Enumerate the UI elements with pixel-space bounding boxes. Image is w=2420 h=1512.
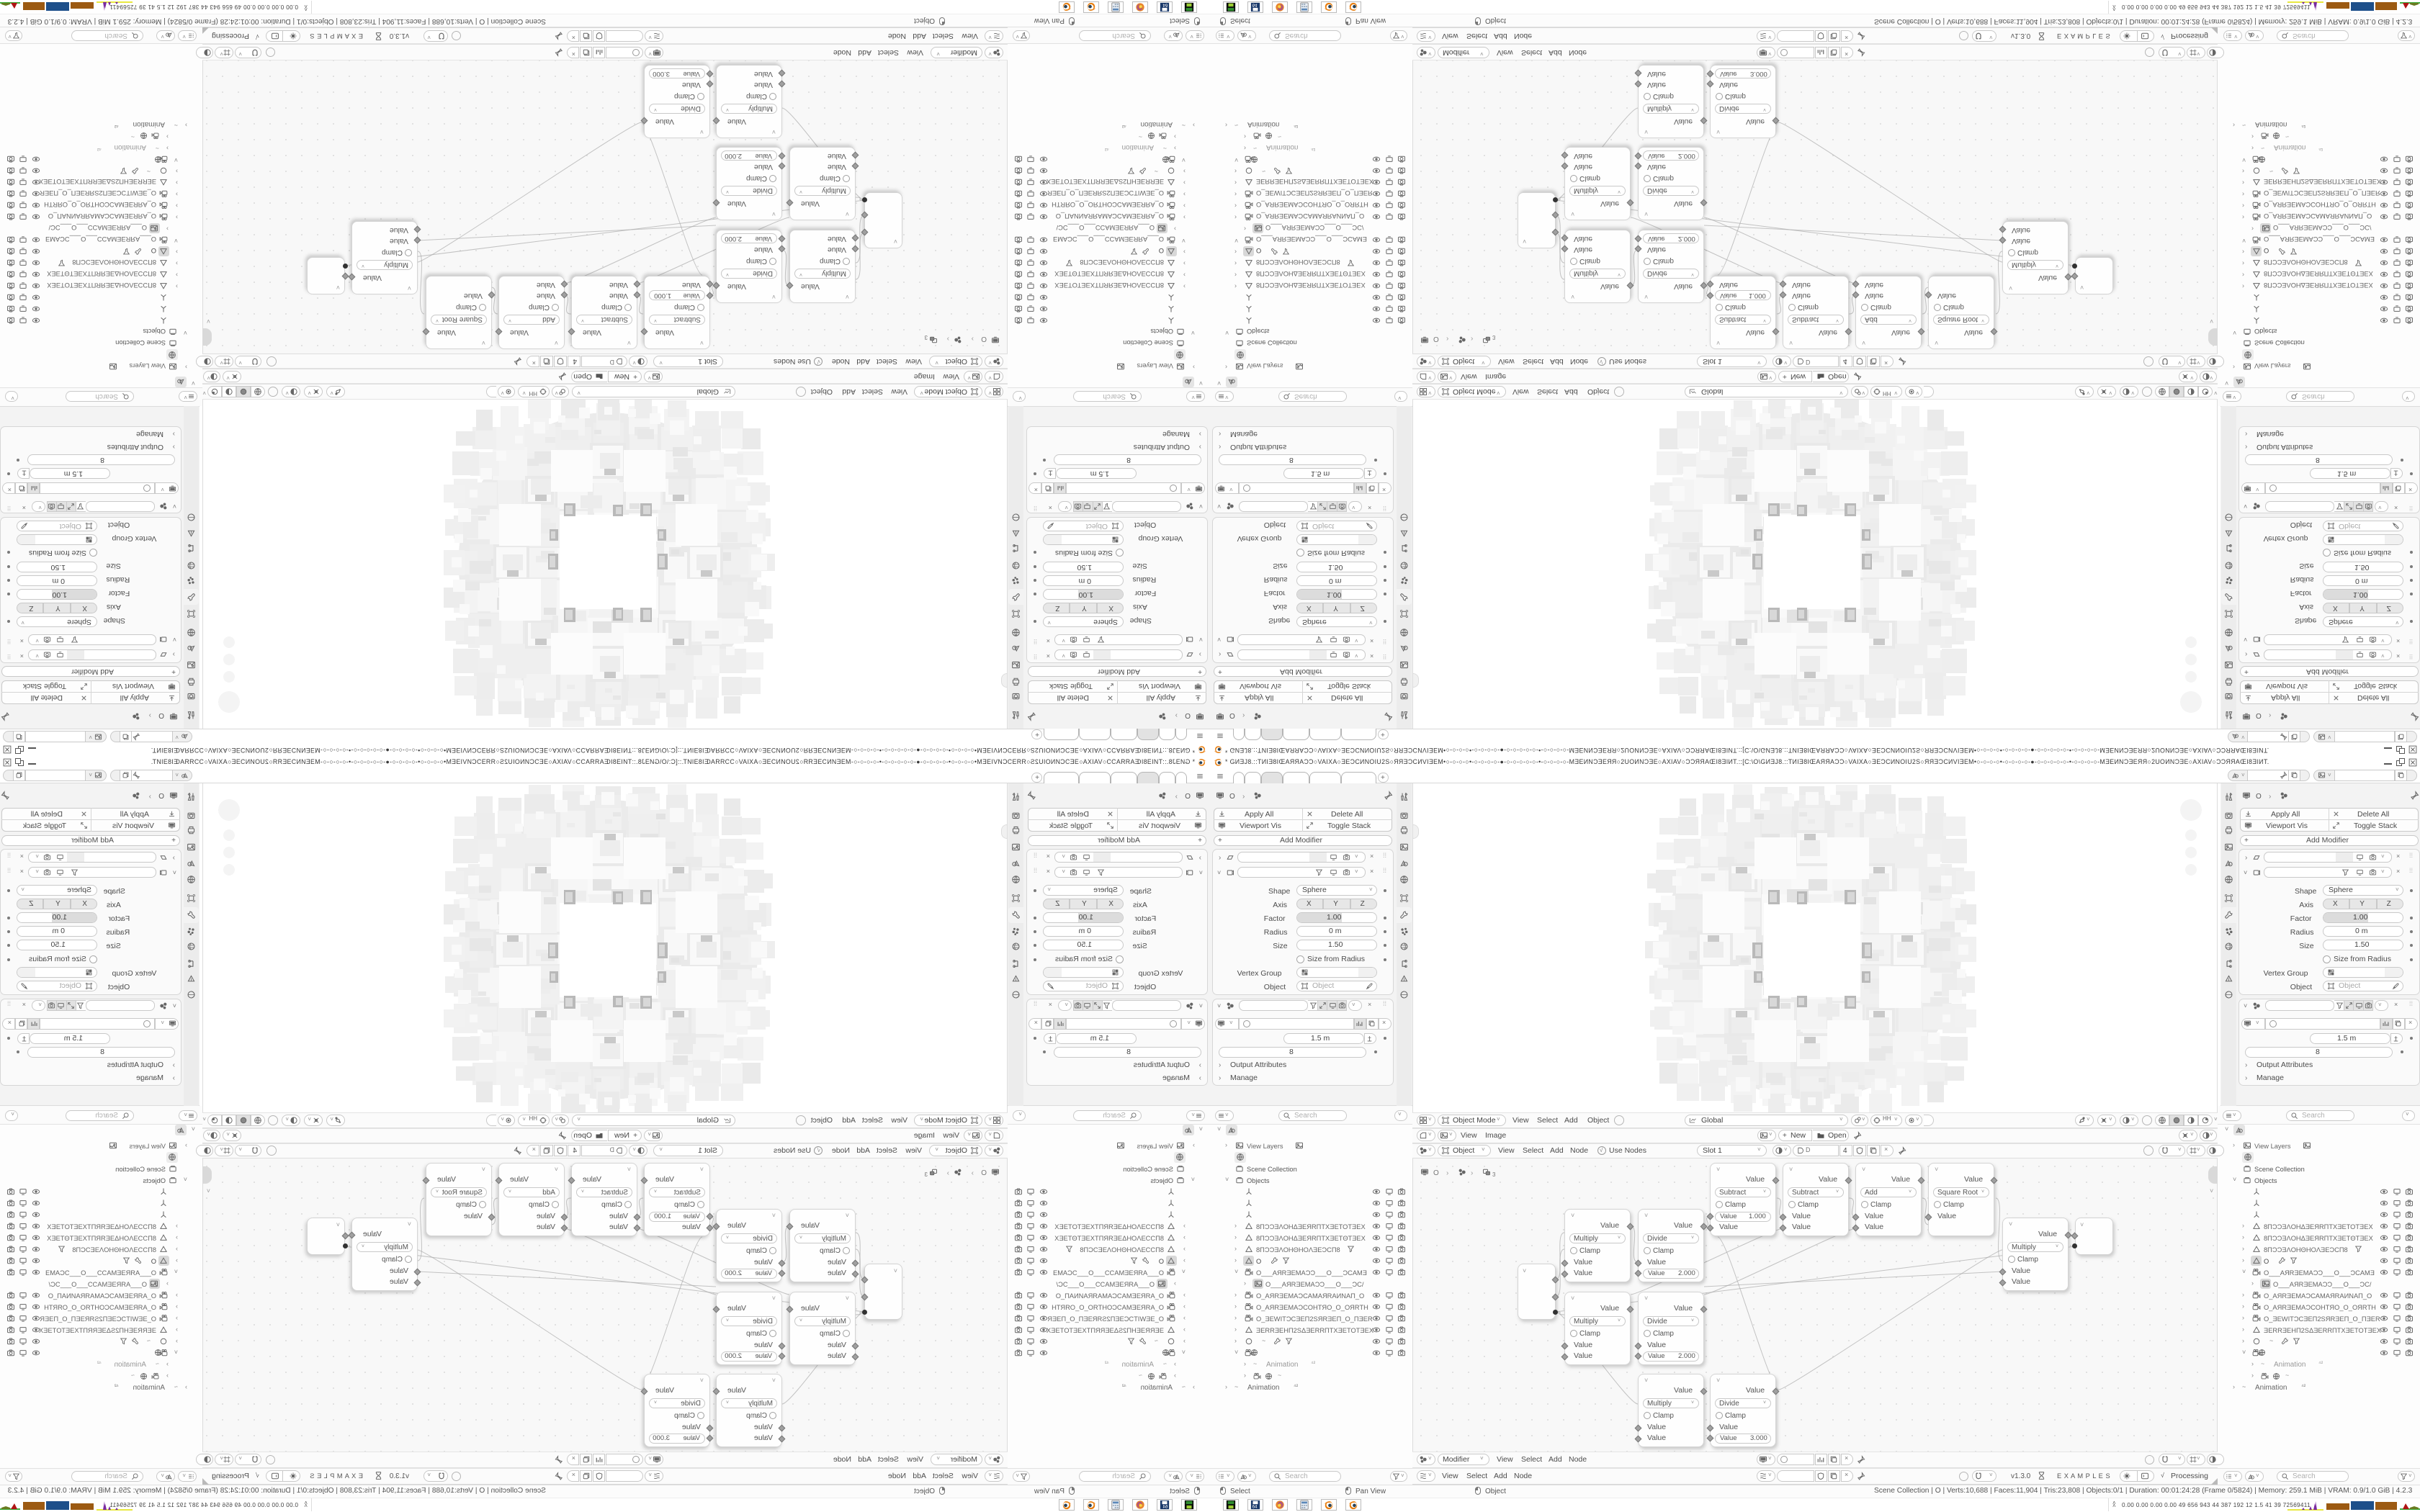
svg-text:64: 64 — [1252, 3, 1258, 8]
svg-text:64: 64 — [1252, 1504, 1258, 1509]
svg-text:64: 64 — [1162, 1504, 1168, 1509]
svg-text:64: 64 — [1162, 3, 1168, 8]
